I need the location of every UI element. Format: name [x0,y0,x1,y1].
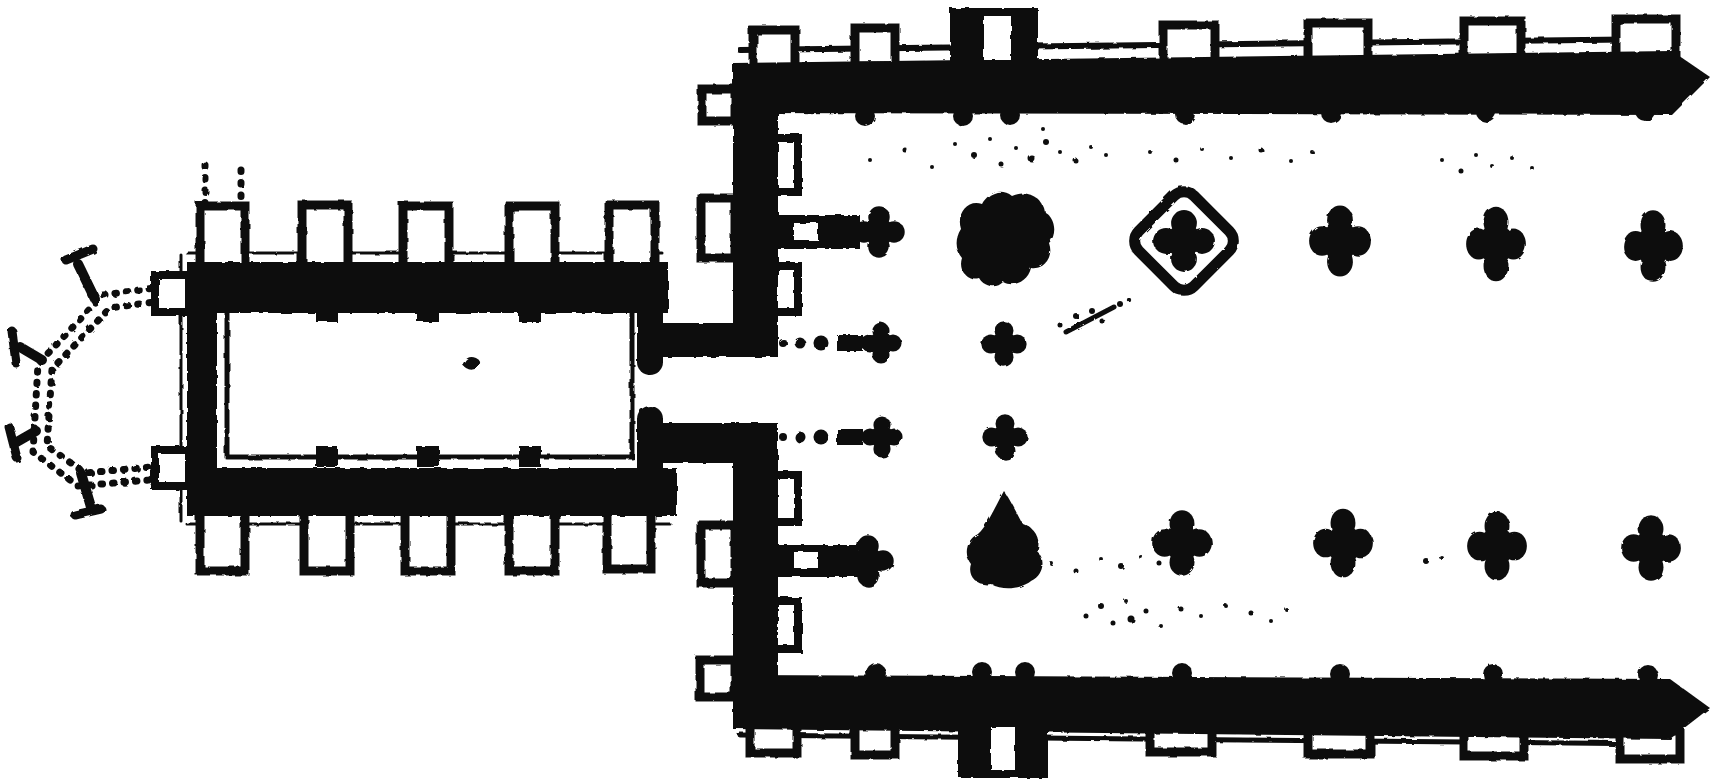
plan-canvas [0,0,1719,781]
church-floor-plan [0,0,1719,781]
